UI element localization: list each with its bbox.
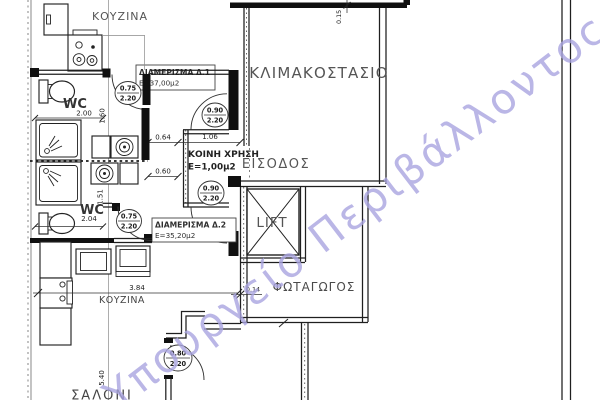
door-size-badge-d1-wc: 0.75 2.20 [115, 82, 141, 105]
room-label-kitchen-top: ΚΟΥΖΙΝΑ [92, 10, 148, 23]
sink2-icon [120, 163, 138, 184]
shower2-icon [36, 162, 81, 205]
sink-unit-icon [76, 249, 111, 274]
door-height: 2.20 [203, 195, 220, 203]
floor-plan-drawing: 0.15 ΚΛΙΜΑΚΟΣΤΑΣΙΟ LIFT ΦΩΤΑΓΩΓΟΣ 0.14 Ε… [0, 0, 600, 400]
apartment-d2-name: ΔΙΑΜΕΡΙΣΜΑ Δ.2 [155, 221, 226, 230]
dim-label-kitchen-width: 3.84 [129, 284, 145, 292]
dim-label-hall-d2: 0.60 [155, 168, 171, 176]
toilet2-icon [39, 213, 75, 234]
dim-label-wc1-width: 2.00 [76, 110, 92, 118]
washing-machine2-icon [91, 163, 118, 184]
room-label-lift: LIFT [256, 215, 287, 231]
door-height: 2.20 [120, 95, 137, 103]
dim-label-wall-top: 0.15 [335, 10, 343, 24]
washing-machine-icon [111, 136, 138, 158]
stove-icon [68, 30, 145, 71]
dim-label-wc1-depth: 1.60 [99, 108, 107, 124]
apartment-d2-label: ΔΙΑΜΕΡΙΣΜΑ Δ.2 Ε=35,20μ2 [152, 218, 236, 242]
sink-icon [92, 136, 110, 158]
door-size-badge-d1-entry: 0.90 2.20 [202, 103, 228, 127]
room-label-common-use: ΚΟΙΝΗ ΧΡΗΣΗ [188, 150, 259, 160]
apartment-d2-area: Ε=35,20μ2 [155, 231, 195, 240]
shower-icon [36, 120, 81, 160]
door-height: 2.20 [121, 223, 138, 231]
room-label-kitchen-bottom: ΚΟΥΖΙΝΑ [99, 295, 145, 306]
fridge-icon [44, 4, 68, 35]
door-width: 0.90 [203, 185, 220, 193]
dim-label-hall-d1: 0.64 [155, 134, 171, 142]
oven-icon [116, 246, 150, 277]
watermark: Υπουργείο Περιβάλλοντος [93, 3, 600, 400]
door-width: 0.90 [207, 107, 224, 115]
door-width: 0.75 [121, 213, 138, 221]
floor-plan: 0.15 ΚΛΙΜΑΚΟΣΤΑΣΙΟ LIFT ΦΩΤΑΓΩΓΟΣ 0.14 Ε… [0, 0, 600, 400]
room-label-common-use-area: Ε=1,00μ2 [188, 163, 236, 173]
dim-label-wc2-depth: 1.51 [97, 189, 105, 205]
dim-label-entry-opening: 1.06 [202, 133, 218, 141]
door-size-badge-d2-wc: 0.75 2.20 [117, 210, 142, 233]
room-label-stairwell: ΚΛΙΜΑΚΟΣΤΑΣΙΟ [249, 64, 389, 82]
door-height: 2.20 [207, 117, 224, 125]
door-width: 0.75 [120, 85, 137, 93]
dim-label-wc2-width: 2.04 [81, 215, 97, 223]
door-size-badge-d2-entry: 0.90 2.20 [198, 181, 224, 205]
